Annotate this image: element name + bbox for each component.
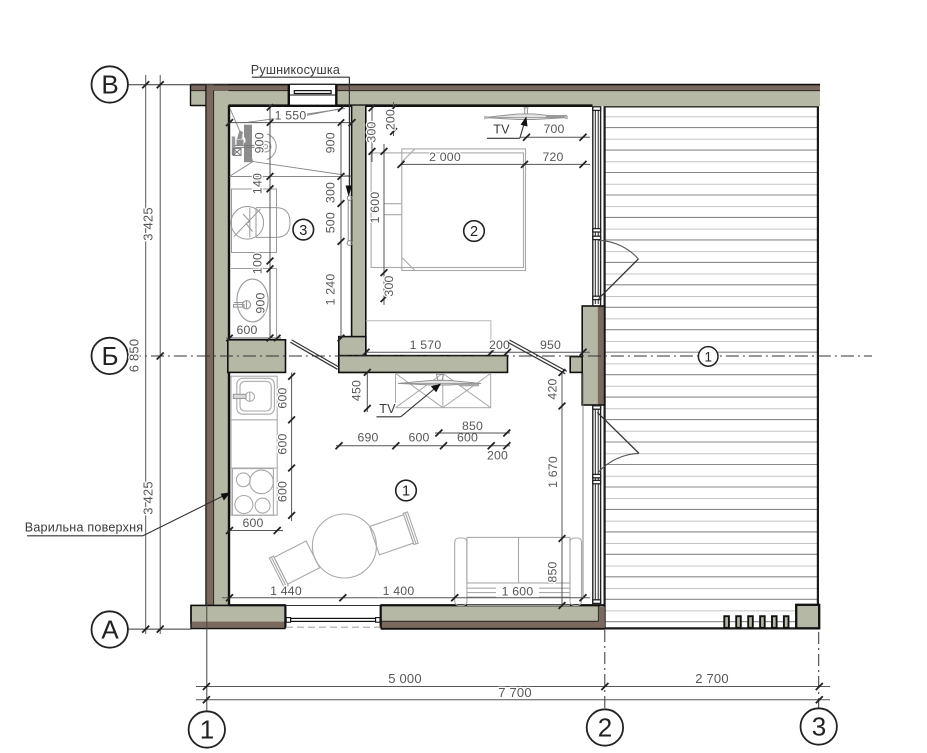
svg-text:В: В — [101, 70, 118, 100]
svg-text:1 400: 1 400 — [383, 584, 415, 598]
svg-text:2 700: 2 700 — [695, 671, 729, 686]
svg-text:3 425: 3 425 — [141, 207, 156, 241]
svg-text:600: 600 — [276, 387, 290, 408]
svg-text:850: 850 — [546, 561, 560, 582]
svg-text:200: 200 — [487, 449, 508, 463]
svg-text:2 000: 2 000 — [429, 150, 461, 164]
svg-text:720: 720 — [542, 150, 563, 164]
svg-text:3: 3 — [812, 712, 826, 742]
svg-text:1: 1 — [704, 349, 712, 364]
svg-text:1 600: 1 600 — [502, 585, 534, 599]
svg-text:Варильна поверхня: Варильна поверхня — [25, 521, 144, 535]
svg-text:200: 200 — [489, 338, 510, 352]
svg-text:1 440: 1 440 — [270, 584, 302, 598]
svg-text:TV: TV — [493, 123, 510, 137]
svg-text:1 570: 1 570 — [410, 338, 442, 352]
svg-text:100: 100 — [251, 253, 265, 274]
svg-text:5 000: 5 000 — [388, 671, 422, 686]
svg-text:1 600: 1 600 — [368, 192, 382, 224]
svg-text:500: 500 — [324, 212, 338, 233]
svg-text:140: 140 — [251, 173, 265, 194]
svg-text:950: 950 — [540, 338, 561, 352]
svg-text:300: 300 — [324, 182, 338, 203]
svg-text:600: 600 — [408, 431, 429, 445]
svg-text:420: 420 — [546, 378, 560, 399]
svg-text:200: 200 — [384, 109, 398, 130]
svg-text:900: 900 — [324, 132, 338, 153]
svg-text:3 425: 3 425 — [141, 481, 156, 515]
svg-text:1 550: 1 550 — [275, 108, 307, 122]
svg-text:1 670: 1 670 — [546, 456, 560, 488]
svg-text:900: 900 — [254, 292, 268, 313]
svg-text:6 850: 6 850 — [127, 339, 142, 373]
svg-text:450: 450 — [350, 380, 364, 401]
svg-text:7 700: 7 700 — [498, 685, 532, 700]
svg-text:690: 690 — [357, 431, 378, 445]
svg-text:600: 600 — [276, 481, 290, 502]
svg-text:2: 2 — [470, 224, 478, 240]
svg-text:1: 1 — [200, 715, 214, 745]
svg-text:2: 2 — [598, 713, 612, 743]
svg-text:Б: Б — [101, 341, 118, 371]
svg-text:TV: TV — [379, 402, 396, 416]
svg-text:1 240: 1 240 — [324, 274, 338, 306]
svg-text:3: 3 — [299, 223, 307, 239]
svg-text:700: 700 — [543, 122, 564, 136]
svg-text:600: 600 — [236, 323, 257, 337]
svg-text:850: 850 — [462, 419, 483, 433]
svg-text:1: 1 — [402, 484, 410, 500]
svg-text:А: А — [101, 615, 119, 645]
svg-text:600: 600 — [276, 433, 290, 454]
svg-text:600: 600 — [242, 516, 263, 530]
svg-text:300: 300 — [365, 121, 379, 142]
svg-text:900: 900 — [253, 132, 267, 153]
svg-text:300: 300 — [382, 275, 396, 296]
svg-text:Рушникосушка: Рушникосушка — [251, 63, 340, 77]
